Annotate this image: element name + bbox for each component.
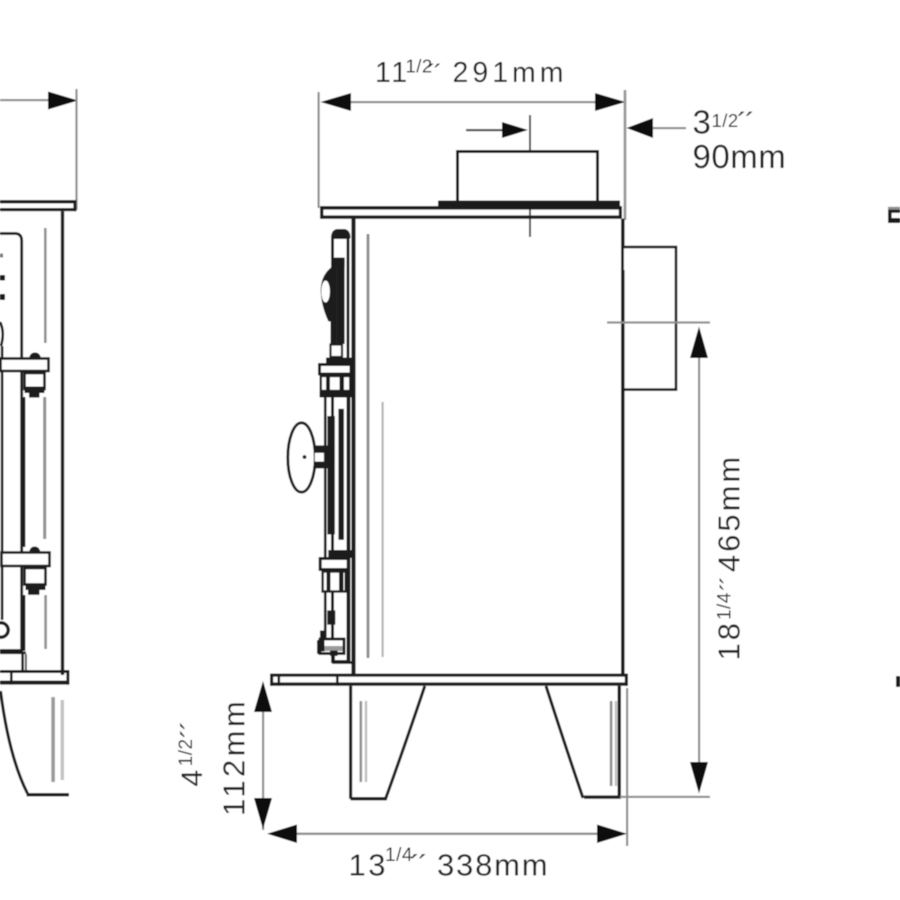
svg-text:1/2: 1/2 xyxy=(712,110,739,131)
svg-text:´´: ´´ xyxy=(410,850,426,883)
svg-text:3: 3 xyxy=(693,104,712,141)
svg-text:13: 13 xyxy=(349,848,388,883)
svg-text:90mm: 90mm xyxy=(693,138,787,175)
svg-text:181/4´´465mm: 181/4´´465mm xyxy=(712,454,747,661)
svg-text:´´: ´´ xyxy=(737,108,753,141)
svg-text:1/4: 1/4 xyxy=(385,845,413,866)
svg-text:112mm: 112mm xyxy=(217,698,252,816)
svg-text:11: 11 xyxy=(375,57,410,89)
svg-text:338mm: 338mm xyxy=(437,848,549,883)
svg-text:´´: ´´ xyxy=(427,59,441,89)
svg-text:291mm: 291mm xyxy=(453,57,568,89)
